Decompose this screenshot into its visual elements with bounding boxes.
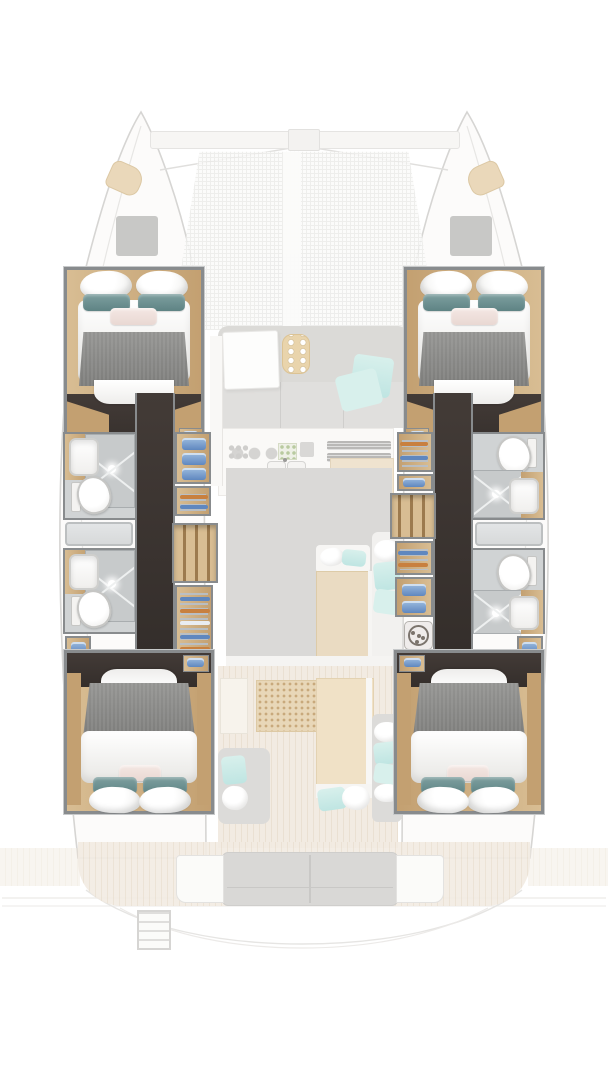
aft-deck-port-wing: [0, 848, 80, 886]
starboard-companionway-stairs: [390, 493, 436, 539]
starboard-aft-cabin: [394, 650, 544, 814]
port-corridor: [135, 393, 175, 653]
port-aft-cabin: [64, 650, 214, 814]
sink-icon: [69, 438, 99, 476]
port-hanger-rack-fwd: [175, 486, 211, 516]
trampoline-center-strip: [283, 152, 301, 328]
cockpit-doormat: [256, 680, 318, 732]
starboard-bathroom-aft: [471, 548, 545, 634]
aft-side-seat-starboard: [396, 855, 444, 903]
aft-bench-sofa: [222, 852, 398, 906]
hanger-item-orange: [398, 563, 428, 567]
bed-rail-left: [527, 673, 541, 805]
port-companionway-stairs: [172, 523, 218, 583]
galley-knob: [300, 442, 314, 457]
pillow-white-left: [89, 786, 142, 814]
double-bed: [418, 270, 530, 404]
bed-blanket: [419, 332, 529, 386]
galley-faucet: [283, 458, 287, 462]
starboard-hull-window: [475, 522, 543, 546]
port-bathroom-fwd: [63, 432, 137, 520]
port-deck-hatch: [116, 216, 158, 256]
swim-ladder: [137, 910, 171, 950]
hanger-item-blue: [180, 597, 210, 601]
starboard-deck-hatch: [450, 216, 492, 256]
port-shelf-unit: [175, 432, 211, 484]
bed-blanket: [79, 332, 189, 386]
starboard-corridor: [433, 393, 473, 653]
hanger-item-blue: [398, 551, 428, 555]
hanger-item-orange: [180, 609, 210, 613]
starboard-wardrobe: [395, 541, 433, 575]
towel-stack-icon: [402, 601, 426, 613]
hanger-item-orange: [400, 442, 428, 446]
double-bed: [81, 669, 197, 811]
anchor-fitting: [288, 129, 320, 151]
shower-drain: [492, 609, 500, 617]
starboard-hanger-rack-fwd: [397, 432, 433, 472]
port-wardrobe: [175, 585, 213, 659]
sink-icon: [69, 554, 99, 590]
double-bed: [78, 270, 190, 404]
aft-side-seat-port: [176, 855, 224, 903]
towel-stack-icon: [182, 468, 206, 480]
towel-stack-icon: [182, 453, 206, 465]
pillow-pink: [110, 308, 157, 325]
towel-stack-icon: [403, 478, 425, 487]
double-bed: [411, 669, 527, 811]
forward-lounge-table: [222, 330, 280, 390]
towel-stack-icon: [402, 584, 426, 596]
starboard-drawer: [397, 474, 433, 491]
vent-grille-1: [327, 441, 391, 450]
bed-rail-right: [197, 673, 211, 805]
towel-stack-icon: [187, 658, 204, 667]
aft-bench-seam: [309, 855, 311, 903]
starboard-towel-drawers: [395, 577, 433, 617]
hanger-item-blue: [180, 505, 208, 509]
port-bathroom-aft: [63, 548, 137, 634]
catamaran-floorplan: [0, 0, 608, 1080]
bed-rail-right: [397, 673, 411, 805]
towel-stack-icon: [404, 658, 421, 667]
washing-machine-icon: [404, 621, 433, 650]
starboard-hull: [390, 265, 546, 818]
shower-drain: [108, 465, 116, 473]
hanger-item-white: [180, 621, 210, 625]
port-forward-cabin: [64, 267, 204, 457]
pillow-white-right: [139, 786, 192, 814]
left-seat-pillow-aqua: [221, 755, 248, 785]
pillow-pink: [451, 308, 498, 325]
port-hull: [62, 265, 218, 818]
cockpit-cabinet: [220, 678, 248, 734]
herb-box: [278, 443, 297, 460]
hanger-item-orange: [180, 495, 208, 499]
pillow-white-right: [417, 786, 470, 814]
towel-stack-icon: [182, 438, 206, 450]
sink-icon: [509, 596, 539, 630]
shower-drain: [108, 580, 116, 588]
bed-rail-left: [67, 673, 81, 805]
bench-pillow-aqua: [341, 549, 367, 567]
cup-tray: [282, 334, 310, 374]
aft-platform-arc-2: [120, 908, 488, 948]
pillow-white-left: [467, 786, 520, 814]
hanger-item-blue: [400, 456, 428, 460]
hanger-item-blue: [180, 635, 210, 639]
bed-blanket: [413, 683, 525, 737]
bed-blanket: [83, 683, 195, 737]
aft-deck-starboard-wing: [528, 848, 608, 886]
port-hull-window: [65, 522, 133, 546]
aft-bench-backline: [227, 887, 393, 888]
starboard-bathroom-fwd: [471, 432, 545, 520]
shower-drain: [492, 490, 500, 498]
sink-icon: [509, 478, 539, 514]
starboard-forward-cabin: [404, 267, 544, 457]
